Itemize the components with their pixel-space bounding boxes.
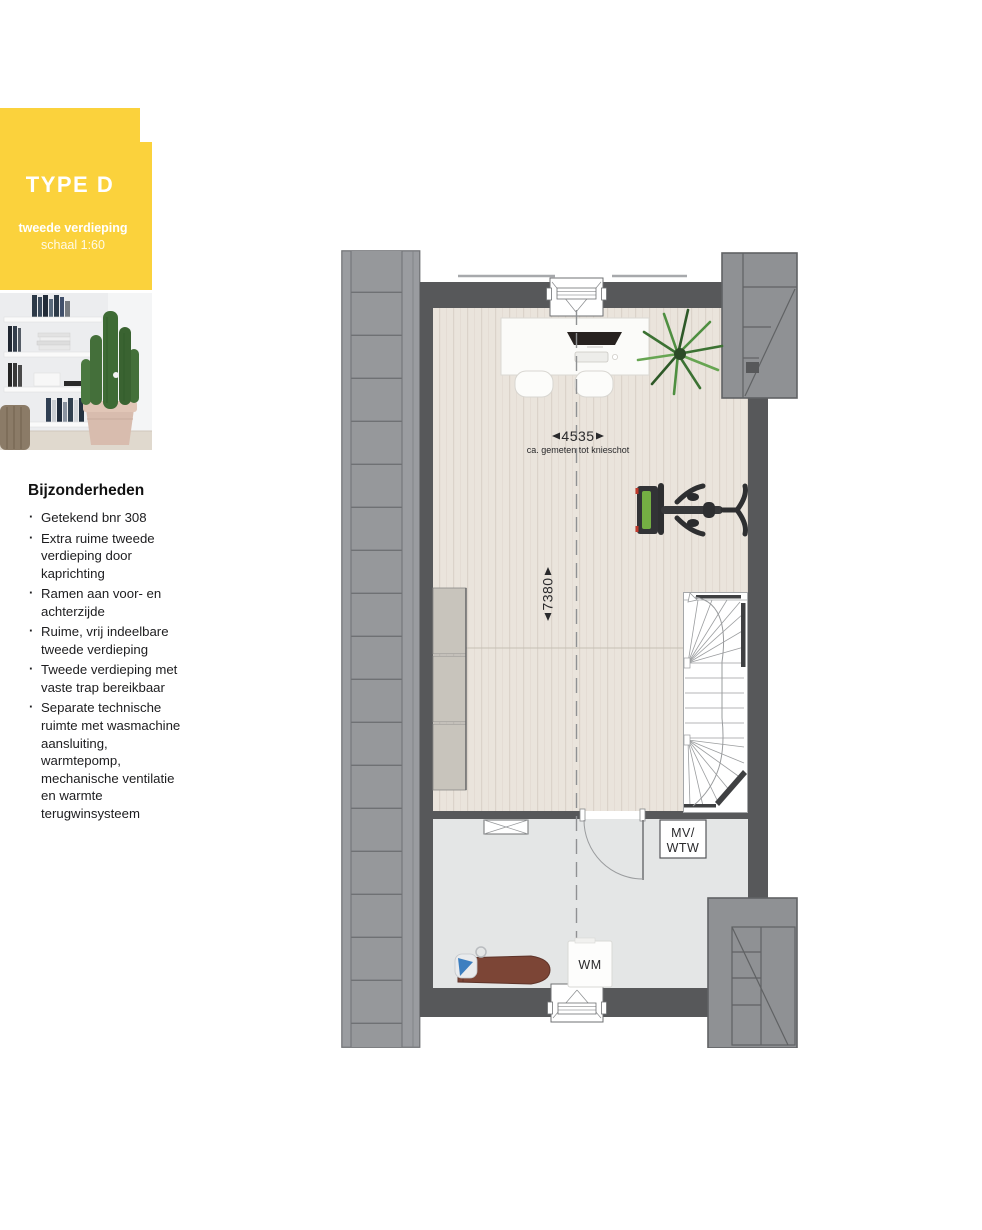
detail-item: Ramen aan voor- en achterzijde xyxy=(28,585,188,620)
details-heading: Bijzonderheden xyxy=(28,482,188,500)
details-list: Getekend bnr 308 Extra ruime tweede verd… xyxy=(28,509,188,822)
detail-item: Ruime, vrij indeelbare tweede verdieping xyxy=(28,623,188,658)
type-subtitle-floor: tweede verdieping xyxy=(0,221,146,235)
detail-item: Separate technische ruimte met wasmachin… xyxy=(28,699,188,822)
wtw-label: WTW xyxy=(667,841,700,855)
desk xyxy=(501,318,649,375)
mouse xyxy=(612,354,617,359)
detail-item: Tweede verdieping met vaste trap bereikb… xyxy=(28,661,188,696)
dim-depth-value: 7380 xyxy=(540,577,556,610)
type-subtitle-scale: schaal 1:60 xyxy=(0,238,146,252)
monitor xyxy=(567,332,622,345)
roof-strip-left xyxy=(342,251,420,1048)
dim-width-value: 4535 xyxy=(561,428,594,444)
window-bottom xyxy=(548,984,607,1022)
detail-item: Extra ruime tweede verdieping door kapri… xyxy=(28,530,188,583)
dormer-top-right xyxy=(722,253,797,398)
wm-box: WM xyxy=(568,938,612,987)
staircase xyxy=(684,593,748,813)
details-panel: Bijzonderheden Getekend bnr 308 Extra ru… xyxy=(28,482,188,825)
floor-plan: WM MV/ WTW 4535 ca. gemeten tot kniescho… xyxy=(341,250,798,1048)
dim-width-note: ca. gemeten tot knieschot xyxy=(527,445,630,455)
vent-grille xyxy=(484,820,528,834)
type-card: TYPE D tweede verdieping schaal 1:60 xyxy=(0,108,152,290)
interior-photo-art xyxy=(0,293,152,450)
wood-stool xyxy=(0,405,30,450)
mvwtw-box: MV/ WTW xyxy=(660,820,706,858)
dormer-bottom-right xyxy=(708,898,797,1048)
brochure-page: { "panel": { "type_label": "TYPE D", "su… xyxy=(0,0,982,1230)
wm-label: WM xyxy=(578,958,601,972)
detail-item: Getekend bnr 308 xyxy=(28,509,188,527)
keyboard xyxy=(575,352,608,362)
floor-plan-drawing: WM MV/ WTW 4535 ca. gemeten tot kniescho… xyxy=(341,250,798,1048)
type-title: TYPE D xyxy=(0,172,140,198)
interior-photo xyxy=(0,293,152,450)
wardrobe-cabinets xyxy=(433,588,466,790)
mv-label: MV/ xyxy=(671,826,695,840)
